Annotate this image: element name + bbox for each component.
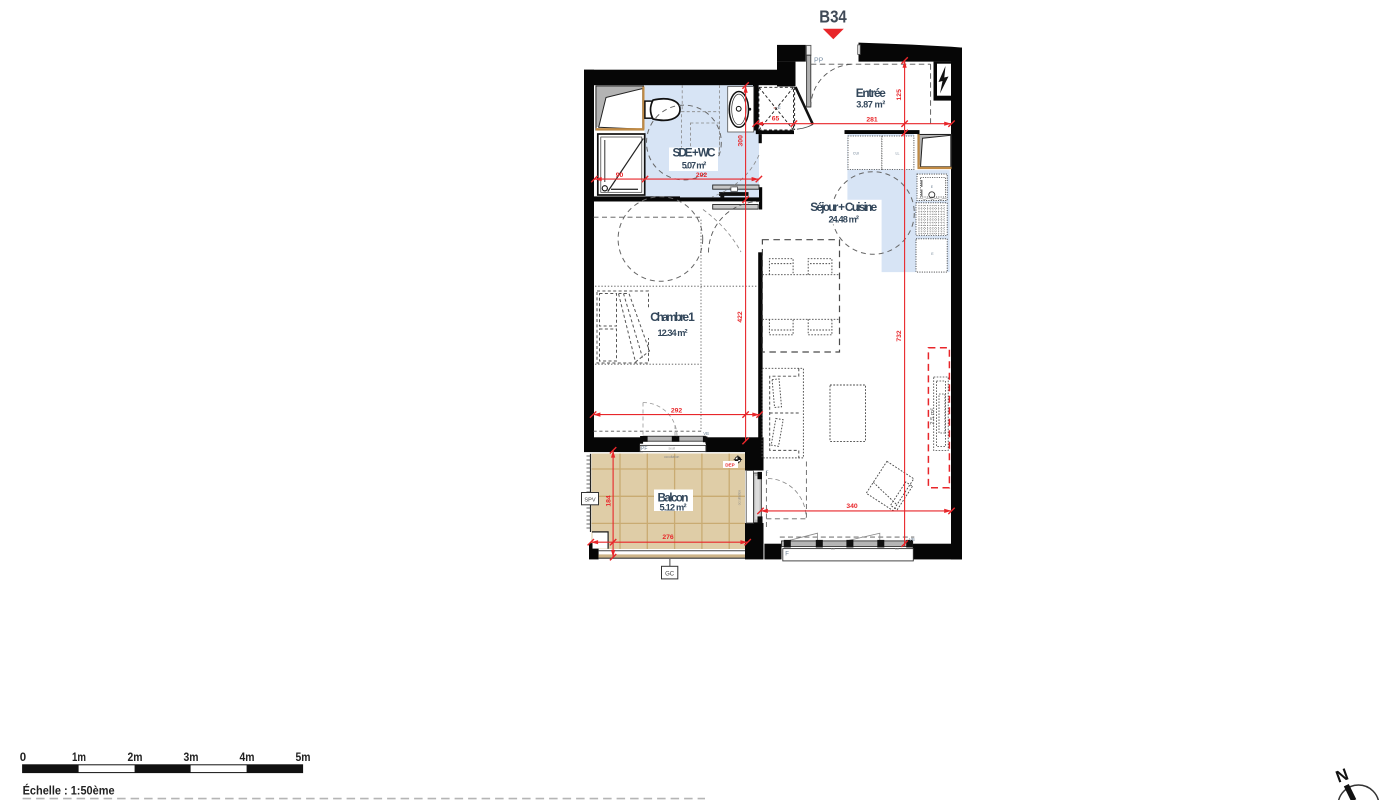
svg-text:732: 732 [896, 330, 903, 342]
svg-text:24.48 m²: 24.48 m² [828, 214, 859, 224]
svg-text:292: 292 [671, 407, 683, 414]
svg-text:276: 276 [662, 534, 674, 541]
svg-text:90: 90 [616, 172, 624, 179]
svg-text:1m: 1m [895, 547, 900, 551]
svg-text:DEP: DEP [725, 462, 734, 467]
svg-text:5.12 m²: 5.12 m² [660, 502, 687, 512]
svg-text:B34: B34 [819, 7, 847, 27]
svg-text:VB: VB [909, 537, 915, 542]
svg-text:4m: 4m [240, 752, 255, 764]
svg-text:1m: 1m [831, 547, 836, 551]
svg-text:0: 0 [20, 752, 26, 764]
svg-text:65: 65 [772, 116, 780, 123]
svg-text:3.87 m²: 3.87 m² [856, 99, 885, 109]
svg-text:Entrée: Entrée [856, 86, 886, 100]
svg-text:PP: PP [814, 57, 824, 64]
svg-text:LL: LL [896, 152, 900, 156]
svg-text:GC: GC [665, 571, 675, 577]
svg-text:Chambre 1: Chambre 1 [650, 310, 695, 324]
svg-text:F: F [785, 551, 789, 557]
svg-text:occultation: occultation [738, 490, 742, 505]
svg-text:422: 422 [737, 311, 744, 323]
svg-text:281: 281 [866, 117, 878, 124]
svg-text:F: F [766, 470, 769, 475]
svg-text:PF: PF [641, 446, 647, 452]
svg-text:2.5 m²: 2.5 m² [930, 408, 936, 424]
svg-text:1m: 1m [72, 752, 86, 764]
svg-text:x: x [774, 105, 776, 110]
svg-text:VB: VB [703, 431, 709, 436]
svg-text:CUI: CUI [853, 152, 859, 156]
svg-text:5.07 m²: 5.07 m² [682, 160, 707, 170]
svg-text:125: 125 [896, 89, 903, 101]
svg-text:300: 300 [738, 135, 745, 147]
svg-text:Séjour + Cuisine: Séjour + Cuisine [810, 200, 877, 214]
svg-text:3m: 3m [184, 752, 199, 764]
svg-text:202: 202 [696, 172, 708, 179]
svg-text:12.34 m²: 12.34 m² [658, 328, 688, 338]
svg-text:occultation: occultation [664, 455, 679, 459]
svg-text:Échelle : 1:50ème: Échelle : 1:50ème [23, 785, 115, 798]
svg-text:340: 340 [846, 503, 858, 510]
svg-text:E: E [778, 105, 781, 110]
svg-text:184: 184 [606, 495, 613, 507]
svg-text:5m: 5m [296, 752, 311, 764]
svg-text:SPV: SPV [584, 497, 595, 503]
svg-text:SDE + WC: SDE + WC [673, 146, 716, 160]
svg-text:seuil: seuil [669, 447, 676, 451]
svg-text:2m: 2m [128, 752, 143, 764]
